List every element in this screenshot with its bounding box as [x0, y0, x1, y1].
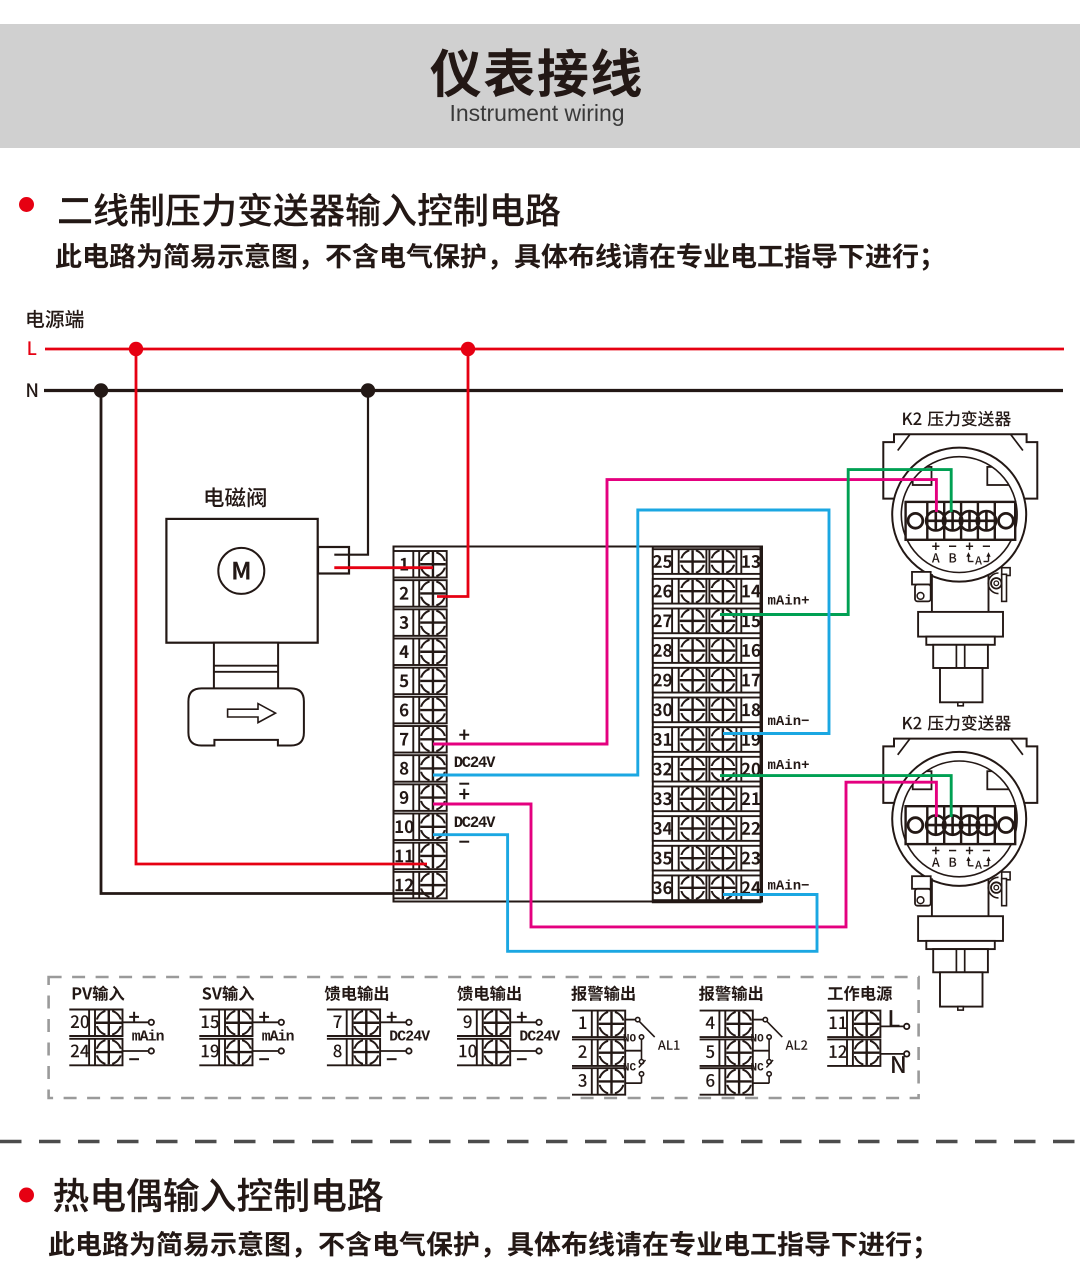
svg-text:NC: NC [751, 1063, 765, 1075]
svg-text:mAin−: mAin− [768, 714, 810, 730]
svg-text:DC24V: DC24V [454, 754, 496, 772]
svg-text:DC24V: DC24V [519, 1030, 560, 1046]
svg-text:mAin: mAin [262, 1030, 294, 1046]
svg-text:NO: NO [751, 1034, 765, 1046]
svg-text:NC: NC [623, 1063, 637, 1075]
svg-text:NO: NO [623, 1034, 637, 1046]
svg-text:mAin−: mAin− [768, 879, 810, 895]
svg-text:DC24V: DC24V [389, 1030, 430, 1046]
svg-text:mAin+: mAin+ [768, 758, 810, 774]
svg-text:mAin+: mAin+ [768, 594, 810, 610]
svg-text:mAin: mAin [132, 1030, 164, 1046]
svg-text:Instrument wiring: Instrument wiring [449, 100, 624, 126]
svg-text:DC24V: DC24V [454, 814, 496, 832]
